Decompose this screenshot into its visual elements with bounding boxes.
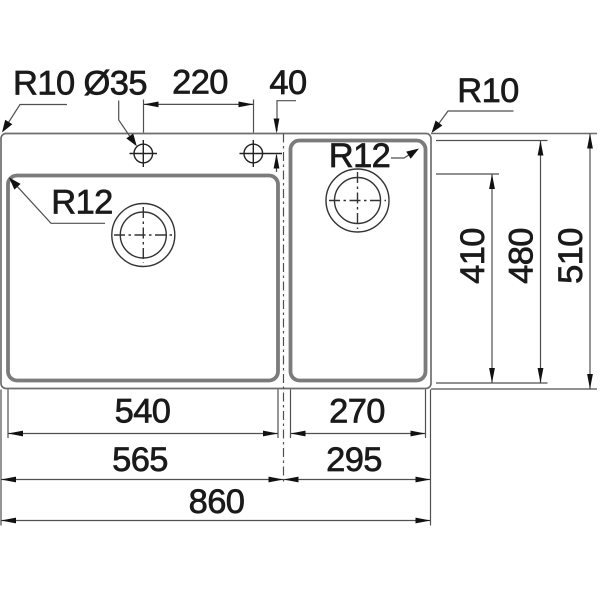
svg-text:270: 270 [329,393,385,431]
svg-text:510: 510 [552,228,590,284]
svg-text:R10 Ø35: R10 Ø35 [13,65,147,103]
svg-text:220: 220 [172,64,228,102]
svg-text:40: 40 [269,64,306,102]
svg-text:540: 540 [115,393,171,431]
svg-text:565: 565 [112,441,168,479]
svg-text:295: 295 [326,441,382,479]
svg-text:R10: R10 [457,72,519,110]
svg-text:R12: R12 [51,184,113,222]
svg-text:860: 860 [189,483,245,521]
svg-text:480: 480 [503,228,541,284]
svg-text:410: 410 [454,228,492,284]
svg-text:R12: R12 [329,137,391,175]
